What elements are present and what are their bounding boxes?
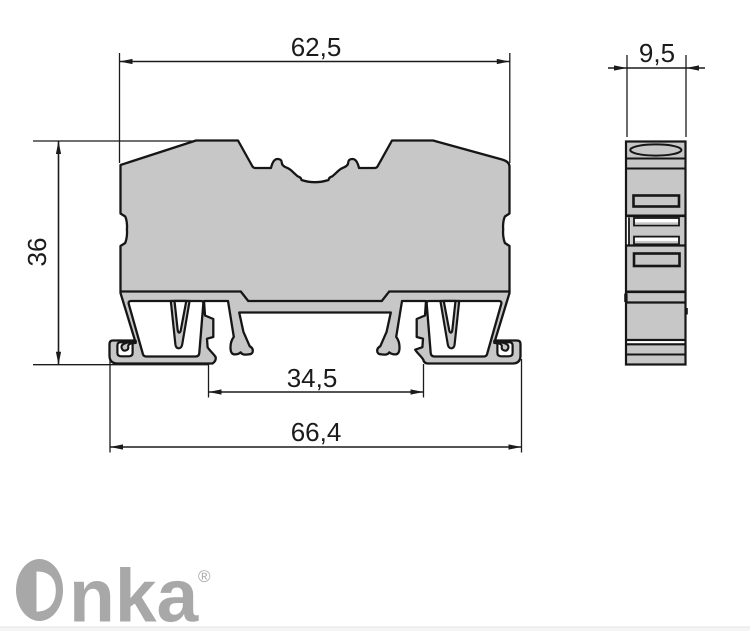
- svg-text:36: 36: [22, 238, 52, 267]
- svg-text:62,5: 62,5: [291, 32, 342, 62]
- svg-text:66,4: 66,4: [291, 417, 342, 447]
- svg-text:®: ®: [198, 567, 211, 586]
- svg-text:nka: nka: [69, 554, 200, 631]
- svg-text:9,5: 9,5: [639, 38, 675, 68]
- svg-text:34,5: 34,5: [287, 363, 338, 393]
